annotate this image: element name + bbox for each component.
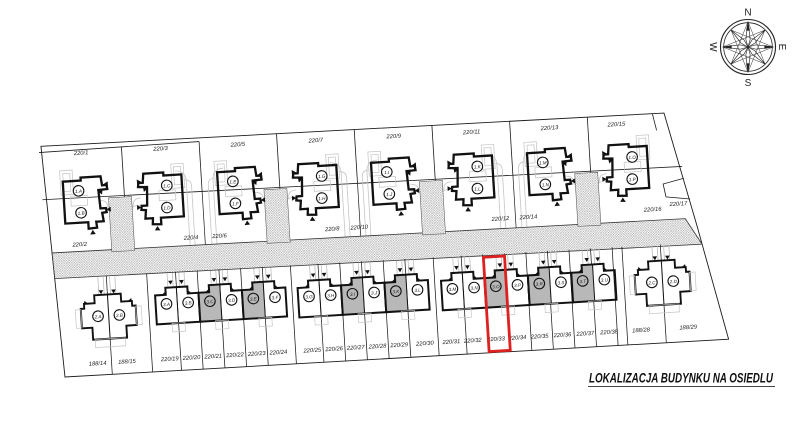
svg-text:220/27: 220/27	[346, 345, 366, 352]
svg-text:220/12: 220/12	[490, 216, 510, 223]
svg-text:220/13: 220/13	[539, 125, 559, 132]
svg-text:220/8: 220/8	[324, 226, 341, 233]
svg-text:220/32: 220/32	[463, 338, 483, 345]
svg-text:3.P: 3.P	[514, 283, 522, 288]
svg-text:2.C: 2.C	[647, 280, 656, 286]
svg-text:220/30: 220/30	[415, 341, 435, 348]
svg-text:220/31: 220/31	[441, 339, 460, 346]
svg-text:1.O: 1.O	[628, 155, 636, 160]
svg-text:3.G: 3.G	[305, 294, 313, 299]
svg-text:1.E: 1.E	[229, 179, 237, 184]
svg-text:220/21: 220/21	[203, 354, 222, 361]
svg-text:1.A: 1.A	[75, 189, 82, 194]
svg-text:1.J: 1.J	[386, 192, 393, 197]
svg-text:220/29: 220/29	[389, 342, 409, 349]
svg-text:3.N: 3.N	[470, 285, 478, 290]
svg-text:220/22: 220/22	[225, 352, 245, 359]
svg-text:3.J: 3.J	[371, 290, 378, 295]
svg-text:1.H: 1.H	[318, 196, 326, 201]
svg-text:220/1: 220/1	[73, 150, 89, 157]
svg-text:220/11: 220/11	[462, 129, 481, 136]
svg-text:3.L: 3.L	[414, 288, 421, 293]
svg-text:3.U: 3.U	[601, 277, 609, 282]
svg-text:1.N: 1.N	[542, 182, 550, 187]
svg-text:220/4: 220/4	[183, 235, 199, 242]
svg-text:3.C: 3.C	[206, 299, 214, 304]
svg-text:3.R: 3.R	[536, 281, 544, 286]
svg-text:220/2: 220/2	[71, 242, 88, 249]
svg-text:3.S: 3.S	[557, 280, 565, 285]
svg-text:220/6: 220/6	[211, 233, 228, 240]
svg-text:220/25: 220/25	[302, 347, 322, 354]
svg-text:LOKALIZACJA BUDYNKU NA OSIEDLU: LOKALIZACJA BUDYNKU NA OSIEDLU	[589, 371, 774, 386]
svg-text:3.M: 3.M	[448, 287, 456, 292]
svg-text:220/19: 220/19	[160, 356, 180, 363]
svg-text:1.B: 1.B	[78, 211, 85, 216]
svg-text:3.D: 3.D	[228, 298, 236, 303]
svg-text:1.G: 1.G	[318, 174, 326, 179]
svg-text:3.O: 3.O	[492, 284, 500, 289]
svg-text:S: S	[745, 78, 752, 89]
svg-text:220/10: 220/10	[349, 225, 369, 232]
svg-text:W: W	[707, 42, 718, 52]
svg-text:1.D: 1.D	[163, 205, 171, 210]
svg-text:2.A: 2.A	[93, 314, 101, 319]
svg-text:220/36: 220/36	[552, 332, 572, 339]
svg-text:1.K: 1.K	[474, 164, 482, 169]
svg-text:220/17: 220/17	[668, 201, 688, 208]
svg-text:1.M: 1.M	[539, 160, 547, 165]
svg-text:1.C: 1.C	[163, 183, 171, 188]
svg-text:1.L: 1.L	[474, 186, 481, 191]
svg-text:220/37: 220/37	[575, 331, 595, 338]
svg-text:220/26: 220/26	[324, 346, 344, 353]
svg-text:N: N	[744, 8, 751, 19]
svg-text:3.H: 3.H	[327, 293, 335, 298]
svg-text:3.B: 3.B	[185, 300, 192, 305]
svg-text:E: E	[776, 44, 787, 51]
svg-text:220/35: 220/35	[530, 334, 550, 341]
svg-text:2.B: 2.B	[115, 313, 123, 318]
svg-text:220/5: 220/5	[230, 142, 247, 149]
svg-text:220/28: 220/28	[368, 343, 388, 350]
svg-text:3.A: 3.A	[163, 302, 170, 307]
svg-text:220/9: 220/9	[385, 133, 402, 140]
svg-text:188/15: 188/15	[118, 359, 137, 366]
svg-text:188/14: 188/14	[89, 361, 107, 368]
svg-text:220/16: 220/16	[643, 207, 663, 214]
svg-text:1.P: 1.P	[629, 177, 637, 182]
svg-text:220/38: 220/38	[599, 329, 619, 336]
svg-text:3.K: 3.K	[392, 289, 400, 294]
svg-text:2.D: 2.D	[669, 279, 678, 285]
svg-text:220/7: 220/7	[307, 138, 324, 145]
svg-text:220/3: 220/3	[152, 146, 169, 153]
svg-text:220/15: 220/15	[606, 121, 626, 128]
svg-text:188/28: 188/28	[632, 327, 651, 334]
svg-text:3.E: 3.E	[250, 296, 258, 301]
svg-text:220/23: 220/23	[247, 351, 267, 358]
svg-text:220/24: 220/24	[268, 350, 287, 357]
svg-text:220/20: 220/20	[182, 355, 202, 362]
svg-text:188/29: 188/29	[679, 324, 698, 331]
svg-text:220/14: 220/14	[518, 214, 537, 221]
